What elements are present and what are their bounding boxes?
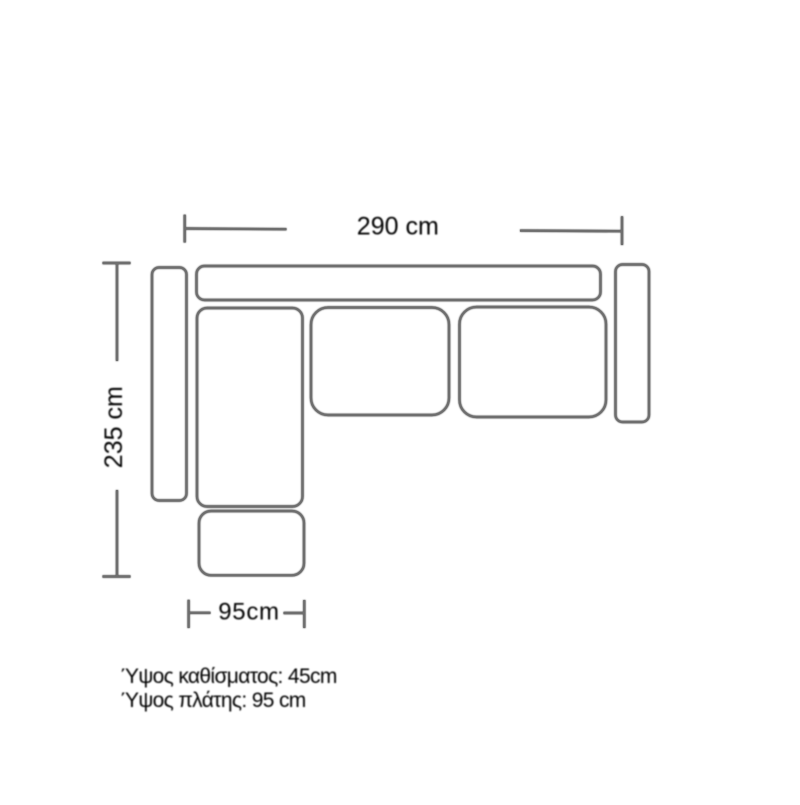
svg-text:235 cm: 235 cm [100,386,128,468]
svg-text:95cm: 95cm [218,598,280,625]
svg-text:Ύψος πλάτης: 95 cm: Ύψος πλάτης: 95 cm [121,689,306,712]
svg-text:Ύψος καθίσματος: 45cm: Ύψος καθίσματος: 45cm [121,665,337,688]
svg-text:290 cm: 290 cm [357,212,439,240]
